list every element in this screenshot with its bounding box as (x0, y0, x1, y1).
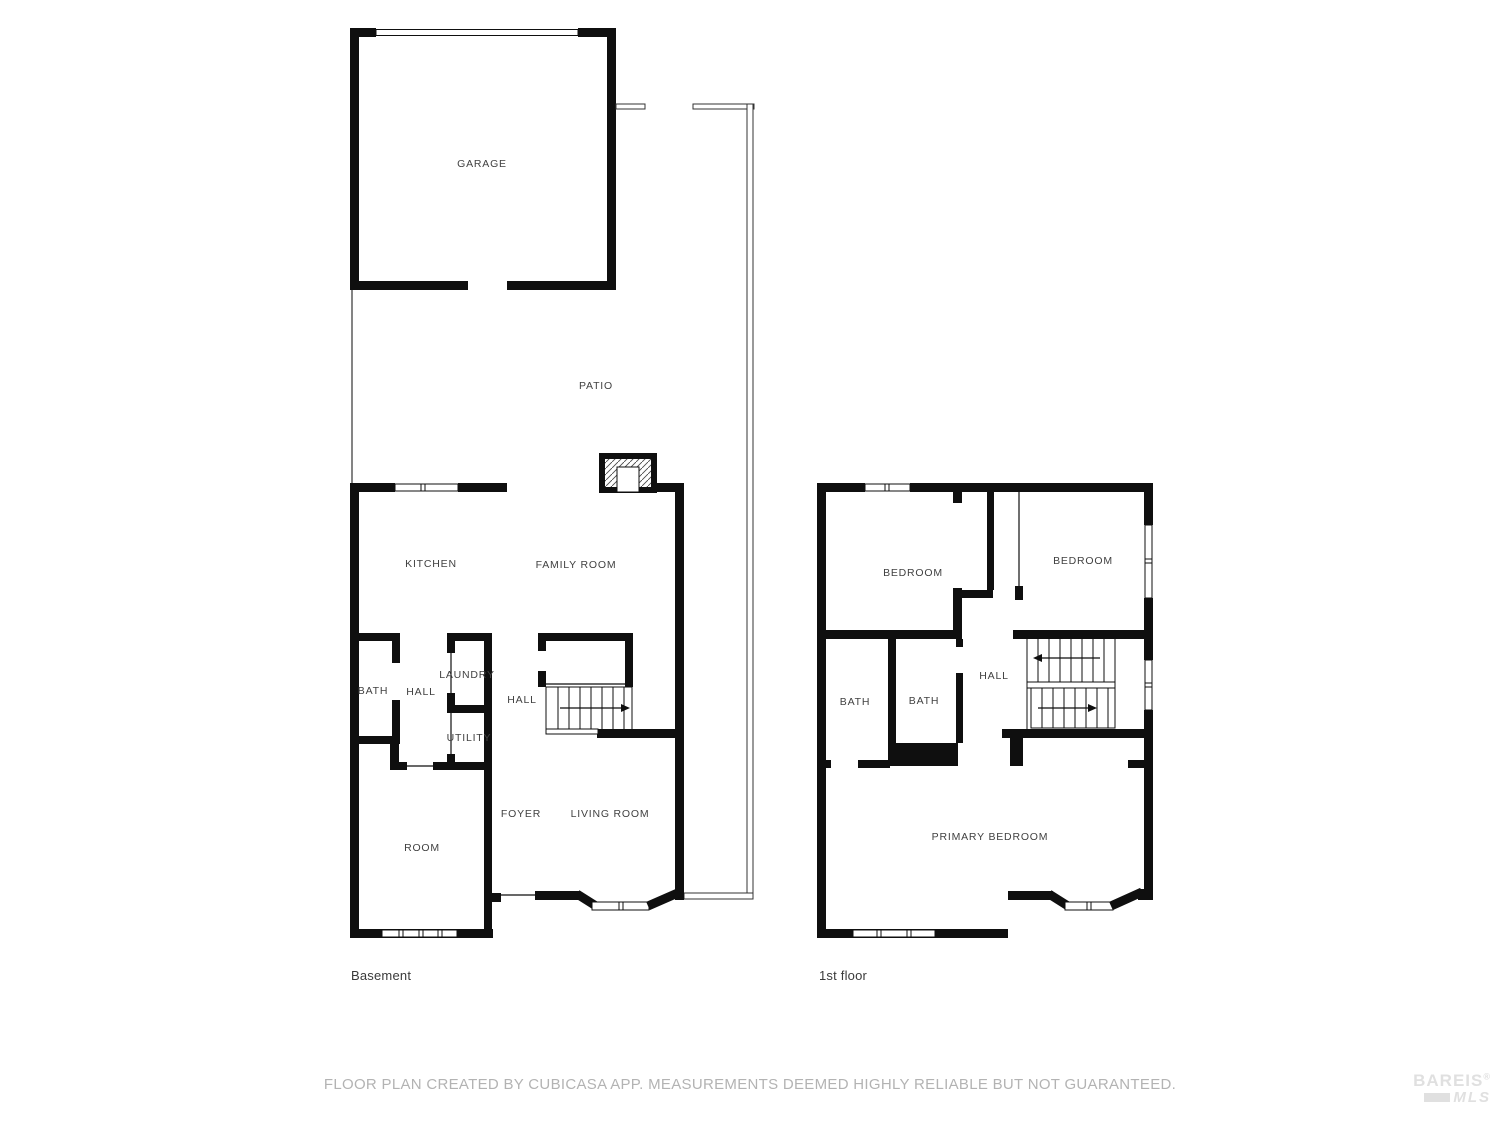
floor-label-basement: Basement (351, 968, 411, 983)
room-label-kitchen: KITCHEN (405, 558, 457, 570)
basement-bay-window (500, 891, 680, 910)
basement-interior-walls (350, 633, 684, 938)
garage-door (376, 30, 578, 36)
room-label-hall-stairs: HALL (507, 694, 536, 706)
room-label-bath-right: BATH (909, 695, 939, 707)
room-label-utility: UTILITY (447, 732, 492, 744)
first-floor-bay-window (1008, 889, 1153, 910)
basement-outer-walls (350, 483, 684, 938)
first-floor-top-window (865, 484, 910, 491)
watermark-brand: BAREIS (1413, 1071, 1483, 1090)
room-label-bedroom-right: BEDROOM (1053, 555, 1113, 567)
floor-plan-page: GARAGE PATIO KITCHEN FAMILY ROOM BATH HA… (0, 0, 1500, 1125)
disclaimer-text: FLOOR PLAN CREATED BY CUBICASA APP. MEAS… (0, 1076, 1500, 1093)
room-label-bedroom-left: BEDROOM (883, 567, 943, 579)
room-label-bath-left: BATH (840, 696, 870, 708)
room-label-patio: PATIO (579, 380, 613, 392)
stairs-up-arrow (621, 704, 630, 712)
room-label-living-room: LIVING ROOM (571, 808, 650, 820)
room-label-hall: HALL (979, 670, 1008, 682)
bedroom-right-window (1145, 525, 1152, 598)
room-label-foyer: FOYER (501, 808, 541, 820)
room-label-family-room: FAMILY ROOM (536, 559, 617, 571)
watermark-sub-brand: MLS (1453, 1090, 1491, 1105)
bareis-mls-watermark: BAREIS® MLS (1413, 1072, 1491, 1105)
first-floor-plan: BEDROOM BEDROOM BATH BATH HALL PRIMARY B… (817, 483, 1153, 983)
first-floor-stairs (1027, 639, 1115, 729)
room-label-primary-bedroom: PRIMARY BEDROOM (932, 831, 1049, 843)
patio-fence (352, 104, 754, 899)
basement-stairs (546, 687, 632, 734)
room-label-room: ROOM (404, 842, 440, 854)
first-floor-outer-walls (817, 483, 1153, 938)
watermark-bar-icon (1424, 1093, 1450, 1102)
floor-label-first-floor: 1st floor (819, 968, 868, 983)
stairwell-window (1145, 660, 1152, 710)
primary-bedroom-window (853, 930, 935, 937)
stairs-arrow-lower (1088, 704, 1097, 712)
room-window (382, 930, 457, 937)
watermark-brand-line: BAREIS® (1413, 1072, 1491, 1089)
watermark-sub-line: MLS (1413, 1090, 1491, 1105)
registered-trademark-icon: ® (1483, 1071, 1491, 1081)
fireplace (602, 456, 654, 492)
first-floor-interior-walls (817, 492, 1153, 768)
floor-plan-canvas: GARAGE PATIO KITCHEN FAMILY ROOM BATH HA… (0, 0, 1500, 1125)
basement-plan: GARAGE PATIO KITCHEN FAMILY ROOM BATH HA… (350, 28, 754, 983)
room-label-garage: GARAGE (457, 158, 507, 170)
room-label-hall-upper: HALL (406, 686, 435, 698)
room-label-bath: BATH (358, 685, 388, 697)
kitchen-window (395, 484, 458, 491)
room-label-laundry: LAUNDRY (439, 669, 495, 681)
